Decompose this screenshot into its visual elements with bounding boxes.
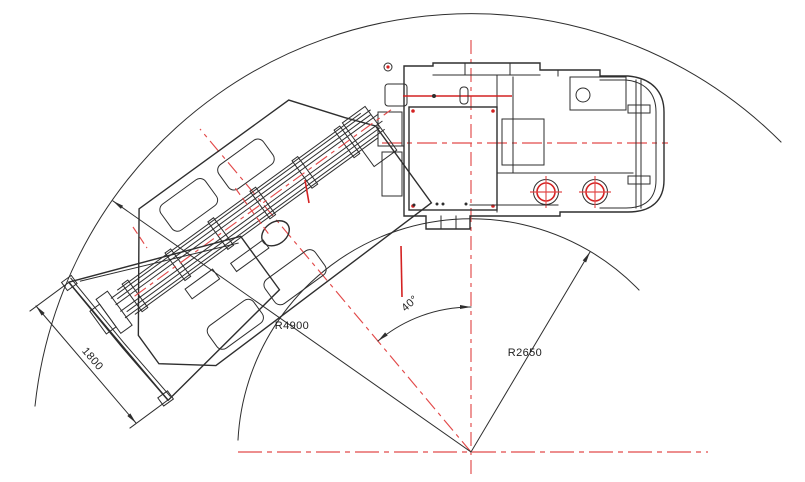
centerline-front-axis (135, 110, 391, 296)
feed-chuck (90, 304, 116, 334)
dimension-angle-40: 40° (378, 293, 471, 341)
blade-corner-shoe (158, 391, 174, 406)
cab-plate (409, 107, 497, 210)
rear-cap-left (530, 176, 562, 208)
rear-section (378, 63, 664, 229)
arrowhead (460, 305, 471, 309)
front-section (53, 55, 453, 412)
rear-cap-right (579, 176, 611, 208)
fuel-cap-circle (576, 88, 590, 102)
centerlines (133, 40, 708, 477)
front-frame-outline (78, 68, 434, 392)
hinge-pin-red (401, 246, 402, 297)
dimension-r4900: R4900 (113, 201, 471, 452)
centerline-blade-tick (133, 227, 147, 248)
dimension-r2650: R2650 (471, 252, 590, 452)
bolt-dot (442, 203, 445, 206)
bolt-dot (436, 203, 439, 206)
cad-drawing: R4900 R2650 40° 1800 (0, 0, 805, 482)
bolt-dot (465, 203, 468, 206)
corner-marker (411, 109, 415, 113)
hose-dot (432, 94, 436, 98)
bolt-dot (413, 204, 416, 207)
bolt-center (386, 65, 389, 68)
bucket-body (69, 185, 294, 407)
bumper-bracket (628, 176, 650, 184)
drawing-canvas: R4900 R2650 40° 1800 (0, 0, 805, 482)
front-panel (204, 297, 266, 353)
arrowhead (378, 332, 388, 341)
label-blade-width: 1800 (79, 345, 105, 373)
label-inner-radius: R2650 (508, 347, 542, 359)
arrowhead (113, 201, 123, 209)
engine-hatch (502, 119, 544, 165)
turntable-ring (257, 216, 294, 251)
bumper-bracket (628, 105, 650, 113)
cylinder-block (185, 269, 220, 299)
corner-marker (491, 109, 495, 113)
label-outer-radius: R4900 (275, 320, 309, 332)
hood-grille-box (570, 77, 626, 110)
arrowhead (583, 252, 590, 263)
rear-bumper-inner-wall (600, 80, 656, 208)
